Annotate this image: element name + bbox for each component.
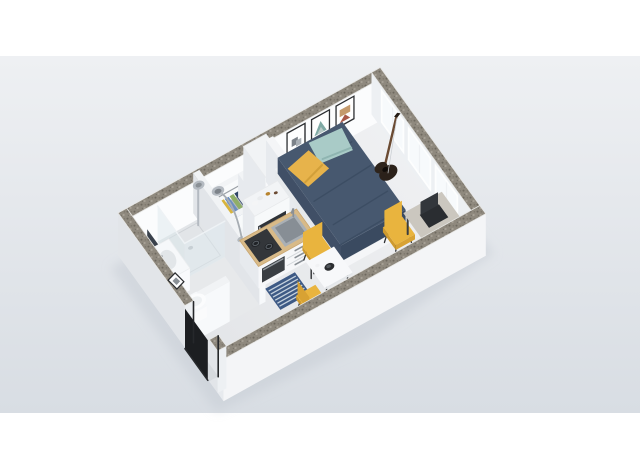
window-2-mullion xyxy=(419,144,420,174)
floorplan-render xyxy=(0,0,640,470)
floorplan-figure xyxy=(0,0,640,470)
page: { "meta": { "label": "3D rendered floor … xyxy=(0,0,640,470)
